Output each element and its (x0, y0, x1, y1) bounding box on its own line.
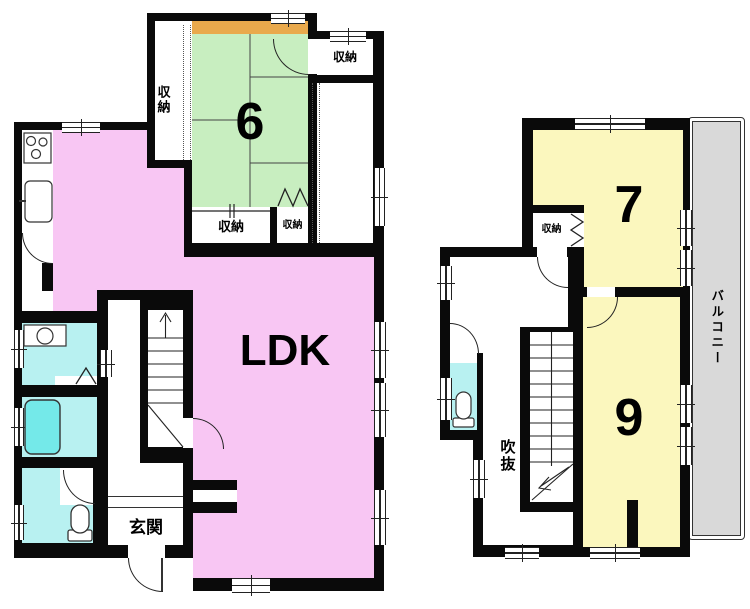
ldk-under-closet (147, 168, 184, 257)
window (374, 322, 386, 378)
room9-wall-stub (627, 500, 638, 547)
closet-2f-label: 収納 (533, 221, 570, 239)
entrance-door-arc (128, 558, 163, 592)
window (374, 168, 385, 226)
sliding-track-dotted (319, 83, 320, 243)
wall-stub (193, 480, 237, 490)
shoe-cabinet (193, 490, 237, 502)
genkan-step-line (108, 496, 183, 497)
floor-plan-canvas: LDK 6 収納 収納 収納 収納 玄関 7 9 収納 吹抜 バルコニー (0, 0, 750, 609)
toilet-room-2f (450, 363, 477, 430)
wall-stub (193, 502, 237, 513)
sliding-track-dotted (312, 83, 313, 243)
window (590, 547, 640, 559)
genkan-step-line (108, 507, 183, 508)
sliding-track-dotted (183, 25, 184, 160)
hall-ldk-door-gap (183, 418, 193, 448)
closet-bottom-right-label: 収納 (276, 217, 309, 235)
closet-left-label: 収納 (148, 58, 178, 142)
window (680, 385, 692, 423)
entrance-label: 玄関 (114, 516, 178, 538)
toilet-2f-door-gap (450, 353, 477, 363)
room7-label: 7 (594, 174, 664, 236)
window (505, 547, 539, 559)
window (680, 210, 692, 246)
ldk-label: LDK (205, 325, 365, 377)
washroom-door (100, 350, 112, 377)
window (232, 578, 270, 593)
window (271, 13, 305, 24)
closet-2f-bifold-box (570, 213, 584, 247)
wall-stub (42, 263, 53, 291)
sliding-track-dotted (190, 25, 191, 160)
window (374, 490, 386, 545)
hall-2f-landing (483, 512, 573, 545)
window (62, 122, 100, 133)
entrance-door-gap (128, 545, 165, 558)
stairs-shaft-2f (530, 332, 573, 502)
door-gap (308, 39, 317, 74)
room7-door-gap (537, 247, 567, 257)
room9-door-gap (587, 287, 615, 297)
void-label: 吹抜 (494, 426, 520, 486)
ldk-kitchen-area (53, 130, 147, 257)
window (440, 266, 452, 300)
closet-bottom-left-label: 収納 (194, 216, 268, 236)
window (680, 427, 692, 465)
entrance-door-panel (161, 558, 163, 591)
balcony-label: バルコニー (704, 278, 728, 378)
window (374, 383, 386, 437)
kitchen-counter (22, 130, 53, 233)
engawa-corridor (317, 83, 373, 243)
window (14, 330, 24, 368)
room9-label: 9 (594, 387, 664, 449)
window (473, 460, 485, 498)
stairs-shaft-1f (148, 310, 183, 447)
tatami6-label: 6 (200, 92, 300, 152)
bathroom (22, 397, 102, 457)
window (440, 378, 452, 420)
window (330, 31, 366, 42)
closet-top-right-label: 収納 (318, 47, 372, 67)
window (680, 250, 692, 286)
ldk-lower-area (193, 545, 374, 578)
window (575, 118, 645, 130)
window (14, 408, 24, 446)
window (14, 505, 24, 540)
washroom-door-band (55, 376, 102, 385)
